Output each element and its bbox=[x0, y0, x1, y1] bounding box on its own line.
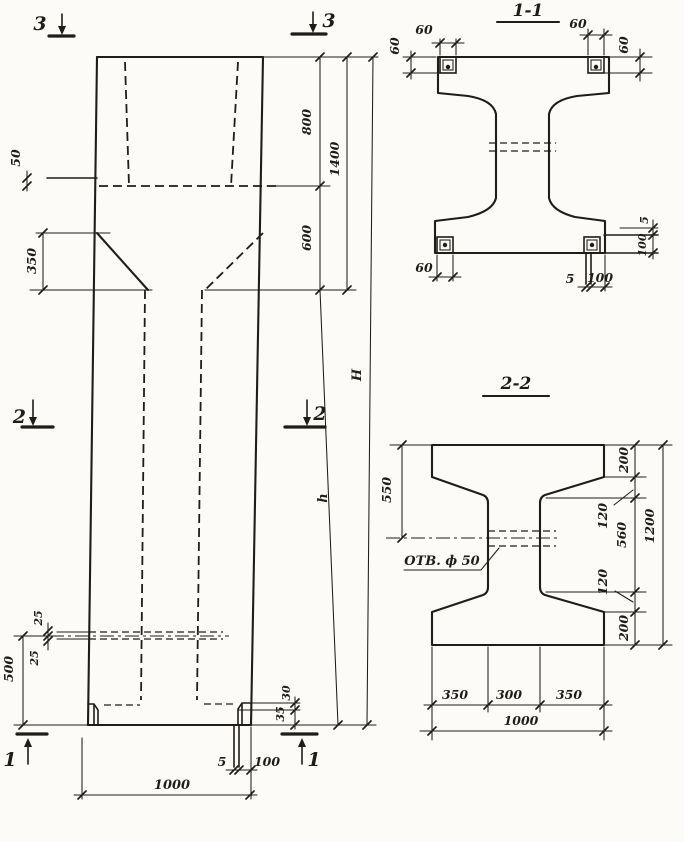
section-2-2-outline bbox=[432, 445, 604, 645]
dim-25-top: 25 bbox=[32, 610, 45, 626]
dim-35: 35 bbox=[274, 706, 287, 721]
dim-500: 500 bbox=[1, 656, 16, 682]
arrow-down-icon bbox=[303, 417, 311, 426]
dim-200-top: 200 bbox=[616, 447, 631, 474]
technical-drawing-canvas: 3 3 2 2 1 1 50 350 bbox=[0, 0, 684, 842]
section-marker-2-left-label: 2 bbox=[12, 406, 26, 428]
dim-5-right: 5 bbox=[638, 216, 651, 224]
section-2-2-view: 2-2 ОТВ. ф 50 550 200 120 560 120 200 12… bbox=[379, 374, 672, 740]
dim-60-top-right-h: 60 bbox=[616, 36, 631, 54]
dim-300: 300 bbox=[496, 687, 522, 702]
dim-1000-base: 1000 bbox=[154, 778, 190, 793]
hole-callout: ОТВ. ф 50 bbox=[404, 548, 499, 570]
arrow-down-icon bbox=[58, 26, 66, 35]
arrow-down-icon bbox=[29, 417, 37, 426]
dim-1400: 1400 bbox=[327, 141, 342, 176]
dim-120-upper: 120 bbox=[595, 503, 610, 529]
dim-60-top-left-w: 60 bbox=[415, 22, 433, 37]
dim-1000: 1000 bbox=[504, 713, 539, 728]
hole-lines bbox=[50, 632, 229, 639]
hidden-web-lines bbox=[99, 62, 277, 700]
dim-600: 600 bbox=[299, 225, 314, 251]
section-1-1-dim-lines bbox=[403, 29, 658, 291]
dim-350: 350 bbox=[24, 248, 39, 274]
dim-560: 560 bbox=[614, 522, 629, 548]
hole-label: ОТВ. ф 50 bbox=[404, 554, 479, 569]
dim-120-lower: 120 bbox=[595, 569, 610, 595]
dim-30: 30 bbox=[280, 685, 293, 701]
dim-350-left: 350 bbox=[442, 687, 468, 702]
section-marker-2-left: 2 bbox=[12, 400, 53, 428]
section-marker-1-right-label: 1 bbox=[307, 749, 320, 771]
dim-H: H bbox=[350, 368, 365, 382]
section-marker-2-right-label: 2 bbox=[312, 403, 326, 425]
dim-5-bottom: 5 bbox=[566, 271, 575, 286]
dim-60-bottom-left: 60 bbox=[415, 260, 433, 275]
section-marker-3-left-label: 3 bbox=[33, 13, 46, 35]
arrow-up-icon bbox=[298, 738, 306, 747]
section-marker-3-right-label: 3 bbox=[322, 10, 335, 32]
dim-800: 800 bbox=[299, 109, 314, 135]
embedded-plates bbox=[437, 57, 604, 253]
dim-h: h bbox=[316, 493, 331, 502]
section-marker-3-left: 3 bbox=[33, 13, 74, 36]
dim-100-foot: 100 bbox=[254, 754, 280, 769]
section-2-2-dimension-texts: 550 200 120 560 120 200 1200 350 300 350… bbox=[379, 447, 657, 728]
dim-50: 50 bbox=[8, 149, 23, 167]
section-marker-1-right: 1 bbox=[282, 734, 321, 771]
section-2-2-ticks bbox=[398, 441, 667, 735]
arrow-down-icon bbox=[309, 24, 317, 33]
section-2-2-dim-lines bbox=[390, 445, 672, 740]
dim-25-bottom: 25 bbox=[28, 650, 41, 666]
dim-100-bottom: 100 bbox=[587, 270, 613, 285]
section-marker-2-right: 2 bbox=[285, 400, 327, 427]
section-1-1-view: 1-1 60 60 60 60 60 bbox=[387, 1, 658, 291]
elevation-view: 3 3 2 2 1 1 50 350 bbox=[1, 10, 378, 799]
arrow-up-icon bbox=[24, 738, 32, 747]
section-marker-1-left-label: 1 bbox=[3, 749, 16, 771]
drawing-sheet: 3 3 2 2 1 1 50 350 bbox=[0, 0, 684, 842]
elevation-dimension-texts: 50 350 800 1400 600 H h 25 25 500 30 35 … bbox=[1, 109, 365, 793]
dim-550: 550 bbox=[379, 477, 394, 503]
dim-350-right: 350 bbox=[556, 687, 582, 702]
section-1-1-outline bbox=[435, 57, 609, 253]
dim-60-top-left-h: 60 bbox=[387, 37, 402, 55]
section-1-1-title: 1-1 bbox=[513, 1, 544, 21]
section-marker-3-right: 3 bbox=[292, 10, 336, 34]
dim-1200: 1200 bbox=[642, 508, 657, 543]
dim-100-right: 100 bbox=[636, 233, 649, 256]
dim-200-bottom: 200 bbox=[616, 615, 631, 642]
section-2-2-title: 2-2 bbox=[500, 374, 532, 394]
column-outline bbox=[47, 57, 263, 725]
section-1-1-hole-dashes bbox=[489, 143, 556, 151]
dim-60-top-right-w: 60 bbox=[569, 16, 587, 31]
section-marker-1-left: 1 bbox=[3, 734, 47, 771]
dim-5-foot: 5 bbox=[218, 754, 227, 769]
